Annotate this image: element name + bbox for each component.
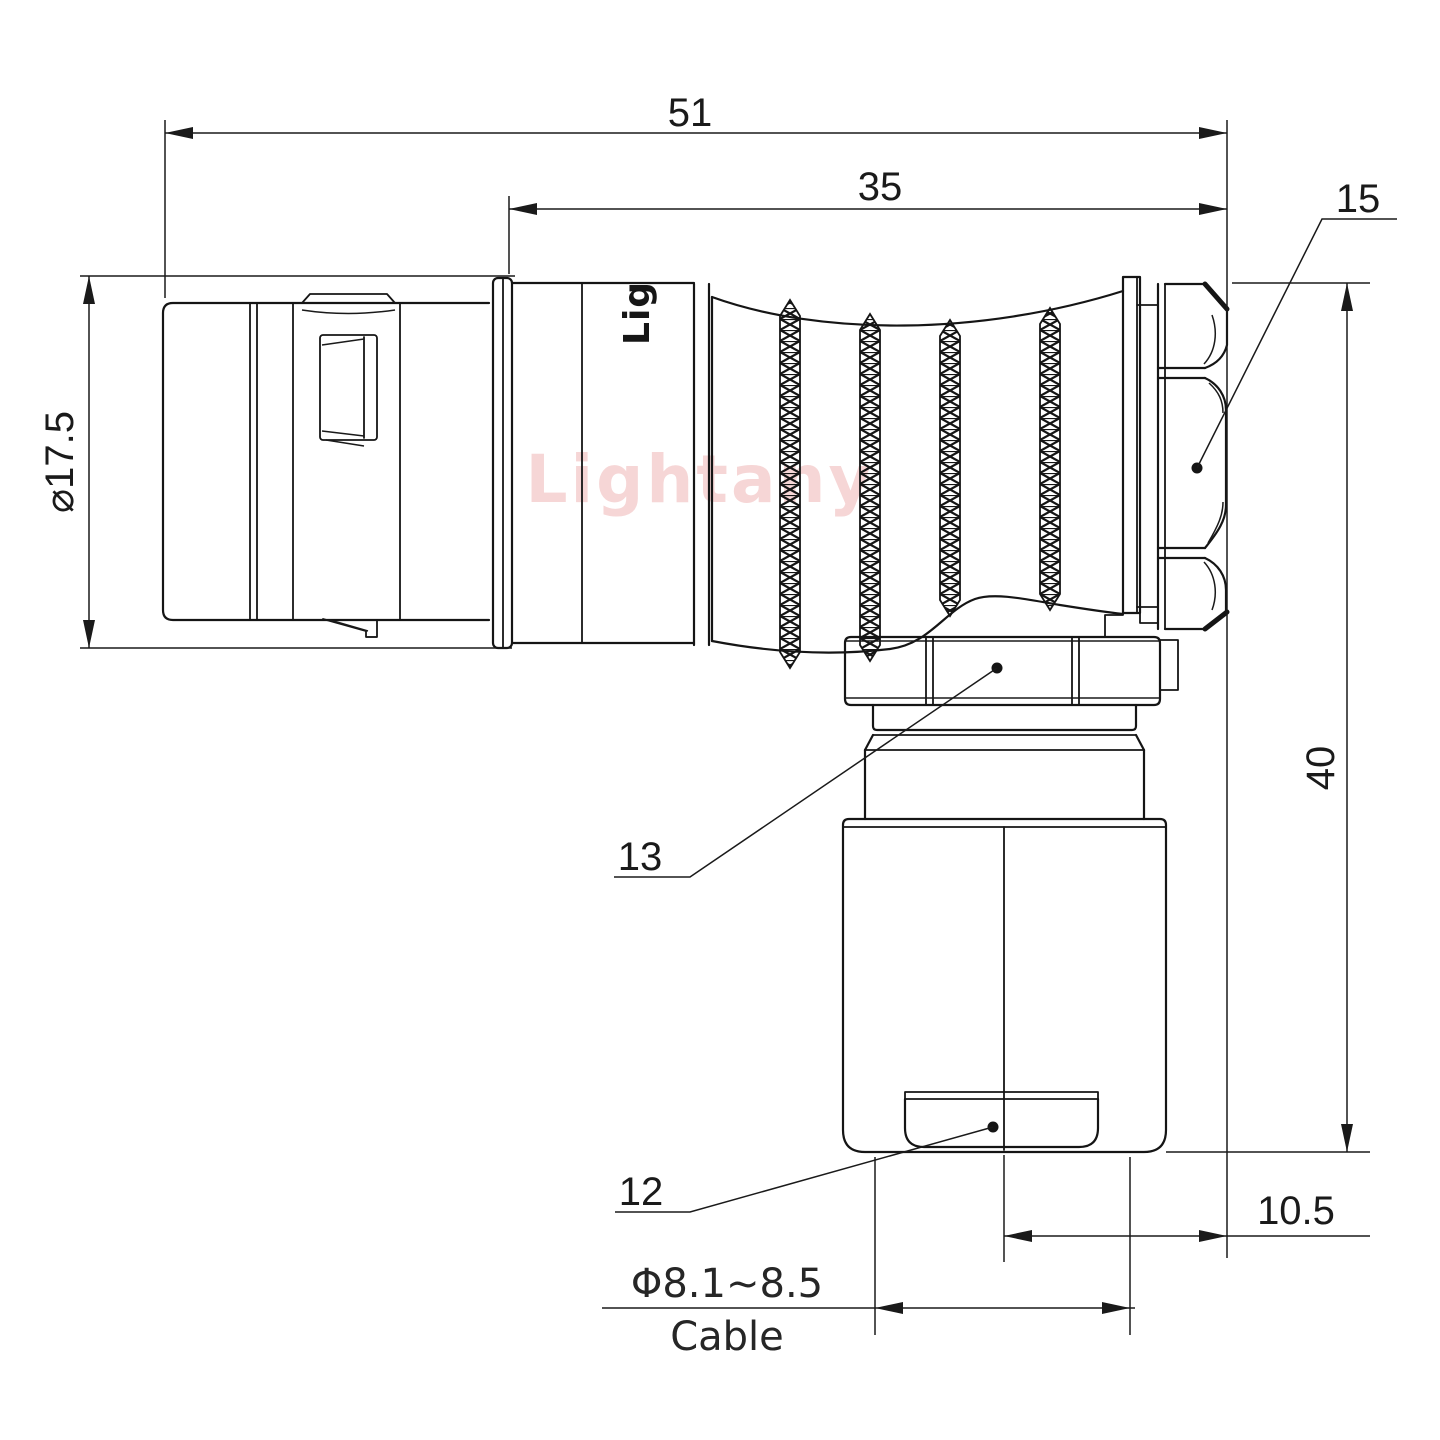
dim-40-label: 40 bbox=[1299, 746, 1343, 791]
callout-13-label: 13 bbox=[618, 835, 663, 879]
shell-ring bbox=[493, 278, 512, 648]
dim-grip-length: 35 bbox=[509, 165, 1227, 274]
dim-shell-diameter: ⌀17.5 bbox=[38, 276, 515, 648]
dimensions: 51 35 ⌀17.5 40 bbox=[38, 91, 1397, 1360]
callout-12-label: 12 bbox=[619, 1170, 664, 1214]
hex-backnut bbox=[1158, 284, 1227, 629]
barrel-engraving: Lig bbox=[617, 281, 658, 345]
elbow-down-leg bbox=[843, 637, 1166, 1152]
latch-window bbox=[320, 335, 377, 446]
dim-35-label: 35 bbox=[858, 165, 903, 209]
grip-end-flange bbox=[1123, 277, 1158, 613]
callout-coupling-nut: 13 bbox=[614, 663, 1003, 880]
latch-fin bbox=[323, 619, 377, 637]
dim-cable-diameter-label: Φ8.1~8.5 bbox=[631, 1261, 823, 1307]
elbow-corner bbox=[1105, 614, 1178, 690]
connector-elbow-drawing: Lightany bbox=[0, 0, 1440, 1440]
callout-backshell-nut: 15 bbox=[1192, 177, 1398, 474]
dim-51-label: 51 bbox=[668, 91, 713, 135]
dim-cable-word-label: Cable bbox=[670, 1314, 784, 1360]
front-shell bbox=[163, 294, 489, 637]
dim-overall-length: 51 bbox=[165, 91, 1227, 298]
callout-cable-bushing: 12 bbox=[615, 1122, 999, 1215]
drawing-canvas: Lightany bbox=[0, 0, 1440, 1440]
dim-axis-offset: 10.5 bbox=[1004, 1155, 1370, 1262]
strain-relief-sleeve bbox=[843, 819, 1166, 1152]
coupling-nut bbox=[845, 637, 1160, 705]
callout-15-label: 15 bbox=[1336, 177, 1381, 221]
cable-bushing bbox=[905, 1092, 1098, 1147]
plug-side-view: Lig bbox=[163, 277, 1227, 690]
dim-10p5-label: 10.5 bbox=[1257, 1189, 1335, 1233]
watermark-text: Lightany bbox=[525, 441, 874, 518]
dim-cable-diameter: Φ8.1~8.5 Cable bbox=[602, 1157, 1135, 1360]
dim-17p5-label: ⌀17.5 bbox=[38, 411, 82, 513]
key-bump bbox=[302, 294, 395, 303]
dim-overall-height: 40 bbox=[1166, 283, 1370, 1152]
gland-neck bbox=[865, 705, 1144, 819]
